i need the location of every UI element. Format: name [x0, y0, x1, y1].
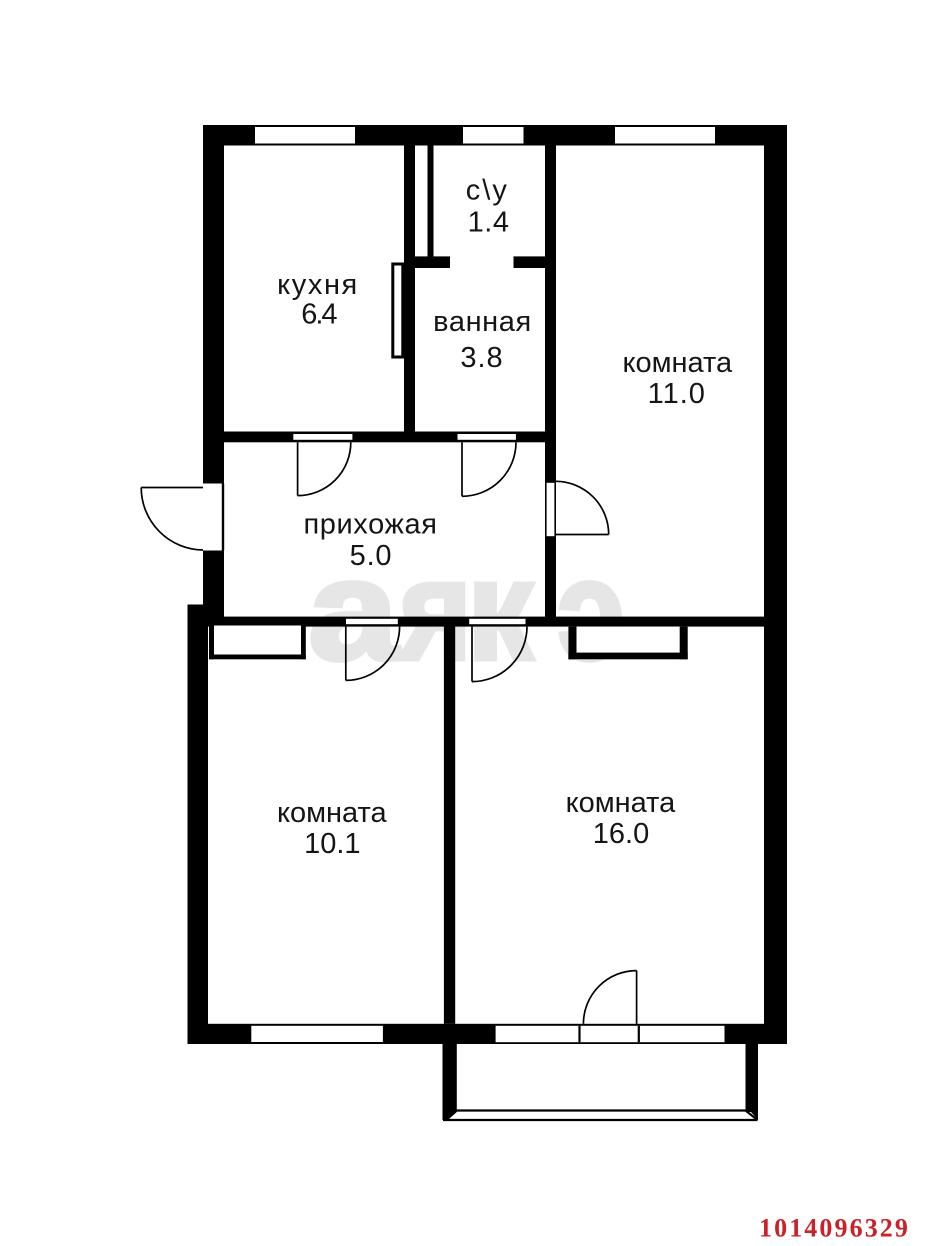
svg-text:ванная: ванная [433, 306, 532, 338]
svg-text:к: к [468, 530, 534, 689]
svg-text:1014096329: 1014096329 [759, 1214, 910, 1243]
svg-text:16.0: 16.0 [593, 818, 649, 850]
svg-text:комната: комната [277, 797, 388, 829]
svg-text:1.4: 1.4 [468, 207, 510, 239]
svg-text:комната: комната [622, 347, 733, 379]
svg-text:с: с [557, 531, 625, 690]
svg-text:я: я [398, 531, 471, 690]
svg-text:10.1: 10.1 [304, 828, 360, 860]
svg-text:5.0: 5.0 [350, 540, 393, 572]
svg-text:3.8: 3.8 [460, 342, 503, 374]
svg-text:с\у: с\у [466, 175, 509, 207]
svg-text:11.0: 11.0 [648, 378, 706, 410]
svg-text:комната: комната [566, 787, 677, 819]
svg-text:прихожая: прихожая [303, 509, 437, 541]
svg-text:кухня: кухня [277, 269, 359, 301]
svg-text:6.4: 6.4 [301, 299, 337, 331]
